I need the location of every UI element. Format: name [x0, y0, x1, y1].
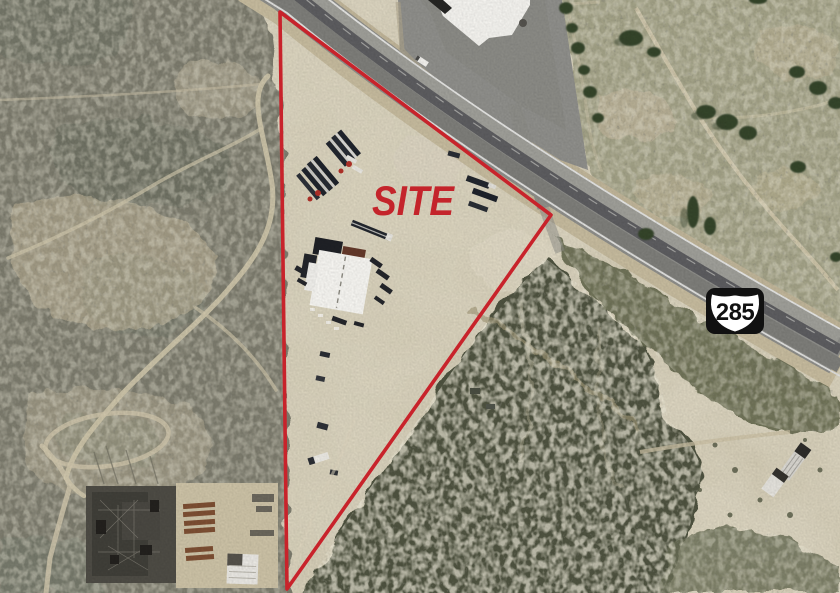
svg-text:285: 285 — [716, 299, 755, 326]
svg-text:SITE: SITE — [372, 177, 456, 224]
